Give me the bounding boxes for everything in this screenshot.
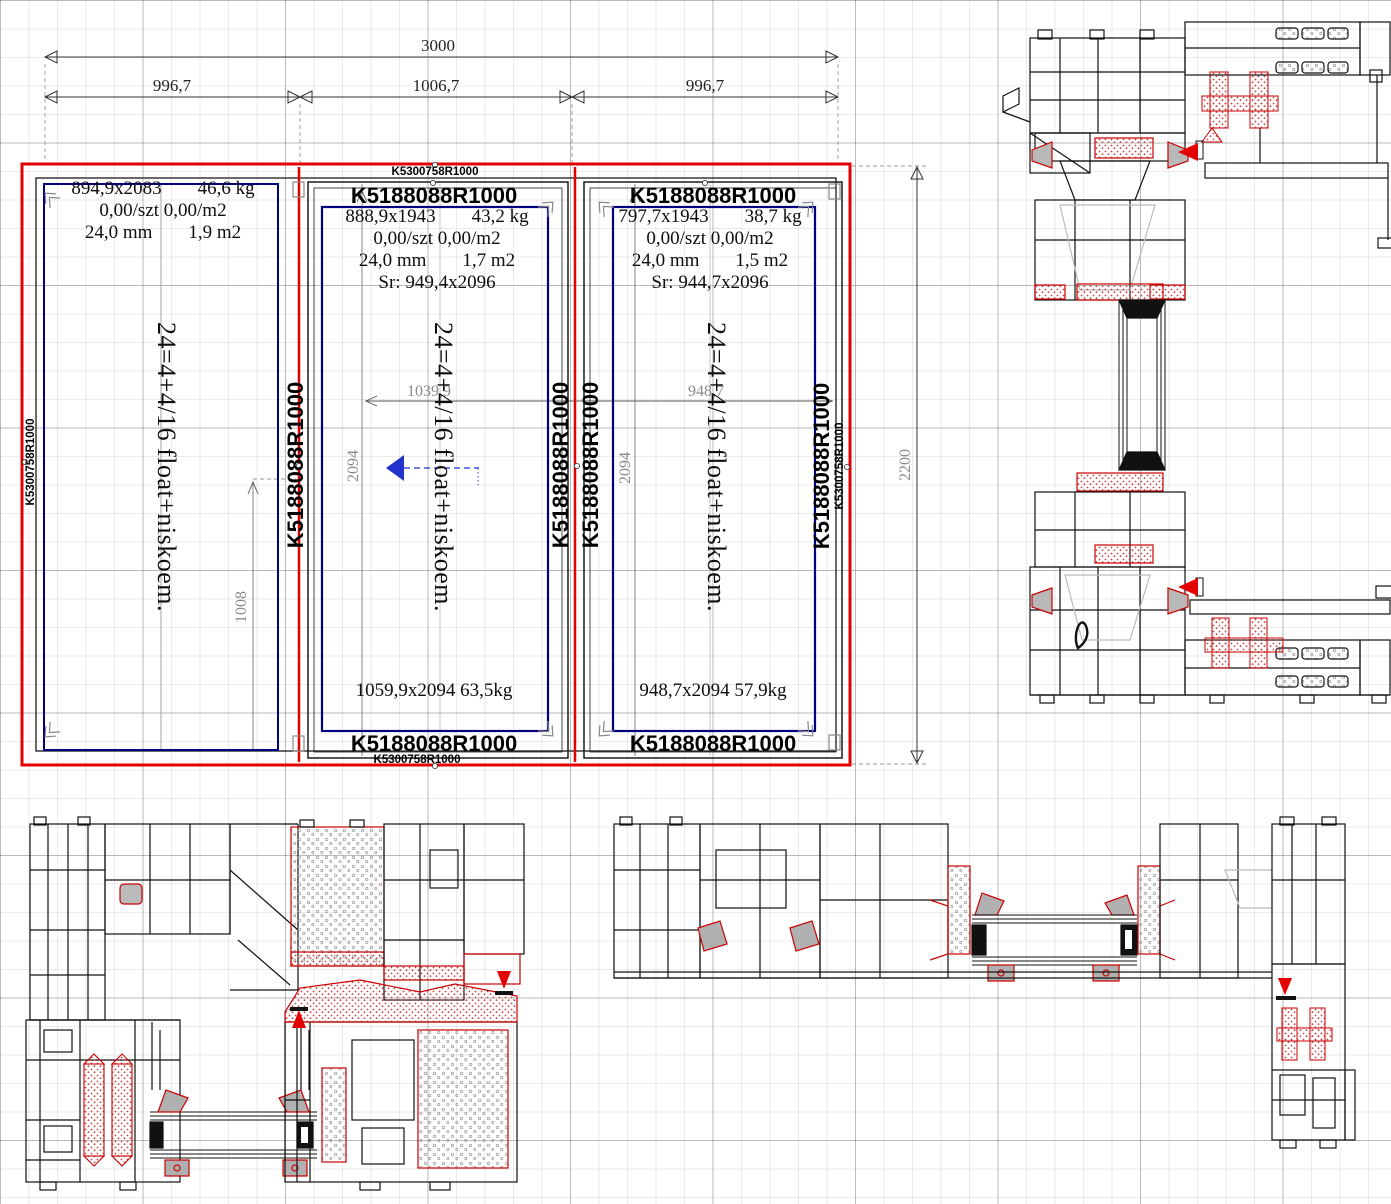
pane-middle-thickness: 24,0 mm bbox=[359, 250, 427, 272]
frame-right-inner-label: K5188088R1000 bbox=[809, 383, 835, 549]
sash-mid-right-label: K5188088R1000 bbox=[548, 382, 574, 548]
pane-left-price: 0,00/szt 0,00/m2 bbox=[99, 200, 226, 222]
pane-middle-weight: 43,2 kg bbox=[472, 206, 529, 228]
pane-left-size: 894,9x2083 bbox=[71, 178, 161, 200]
thermal-break-bottom bbox=[1205, 618, 1283, 668]
pane-middle-sr: Sr: 949,4x2096 bbox=[378, 272, 495, 294]
dim-left-width: 996,7 bbox=[153, 76, 191, 96]
sash-right-bottom-label: K5188088R1000 bbox=[630, 731, 796, 757]
frame-left-label: K5300758R1000 bbox=[25, 419, 37, 506]
dim-mid-glass-height: 2094 bbox=[345, 450, 363, 482]
frame-right-label: K5300758R1000 bbox=[834, 423, 846, 510]
wall-anchor bbox=[1003, 88, 1019, 112]
dim-mid-width: 1006,7 bbox=[413, 76, 460, 96]
pane-middle-area: 1,7 m2 bbox=[462, 250, 515, 272]
pane-middle-size: 888,9x1943 bbox=[345, 206, 435, 228]
pane-right-weight: 38,7 kg bbox=[745, 206, 802, 228]
right-thermal-break bbox=[1277, 1008, 1332, 1060]
pane-right-size: 797,7x1943 bbox=[618, 206, 708, 228]
cad-canvas: 3000 996,7 1006,7 996,7 2200 1008 1039,9… bbox=[0, 0, 1391, 1204]
sash-mid-size-text: 1059,9x2094 63,5kg bbox=[356, 680, 513, 702]
frame-top-label: K5300758R1000 bbox=[392, 166, 479, 178]
pane-left-specs: 894,9x208346,6 kg 0,00/szt 0,00/m2 24,0 … bbox=[48, 178, 278, 244]
pane-middle-specs: 888,9x194343,2 kg 0,00/szt 0,00/m2 24,0 … bbox=[317, 206, 557, 294]
horizontal-section-drawing[interactable] bbox=[20, 815, 1350, 1195]
pane-right-specs: 797,7x194338,7 kg 0,00/szt 0,00/m2 24,0 … bbox=[590, 206, 830, 294]
dim-right-width: 996,7 bbox=[686, 76, 724, 96]
pane-middle-glazing-text: 24=4+4/16 float+niskoem. bbox=[428, 322, 458, 612]
section-arrow-icon bbox=[1178, 141, 1203, 596]
sash-right-size-text: 948,7x2094 57,9kg bbox=[639, 680, 786, 702]
pane-left-weight: 46,6 kg bbox=[198, 178, 255, 200]
pane-left-thickness: 24,0 mm bbox=[85, 222, 153, 244]
pane-middle-price: 0,00/szt 0,00/m2 bbox=[373, 228, 500, 250]
pane-right-thickness: 24,0 mm bbox=[632, 250, 700, 272]
pane-left-area: 1,9 m2 bbox=[188, 222, 241, 244]
sash-mid-bottom-label: K5188088R1000 bbox=[351, 731, 517, 757]
dim-total-height: 2200 bbox=[897, 449, 915, 481]
dim-right-glass-height: 2094 bbox=[617, 452, 635, 484]
pane-left-glazing-text: 24=4+4/16 float+niskoem. bbox=[151, 322, 181, 612]
pane-right-area: 1,5 m2 bbox=[735, 250, 788, 272]
vertical-section-drawing[interactable] bbox=[995, 15, 1391, 715]
sash-right-left-label: K5188088R1000 bbox=[578, 382, 604, 548]
dim-fixed-height: 1008 bbox=[233, 591, 251, 623]
mullion-left-label: K5188088R1000 bbox=[283, 382, 309, 548]
thermal-break-top bbox=[1202, 72, 1278, 142]
pane-right-sr: Sr: 944,7x2096 bbox=[651, 272, 768, 294]
dim-total-width: 3000 bbox=[421, 36, 455, 56]
pane-right-price: 0,00/szt 0,00/m2 bbox=[646, 228, 773, 250]
pane-right-glazing-text: 24=4+4/16 float+niskoem. bbox=[701, 322, 731, 612]
mullion-gasket-columns bbox=[84, 1054, 132, 1166]
